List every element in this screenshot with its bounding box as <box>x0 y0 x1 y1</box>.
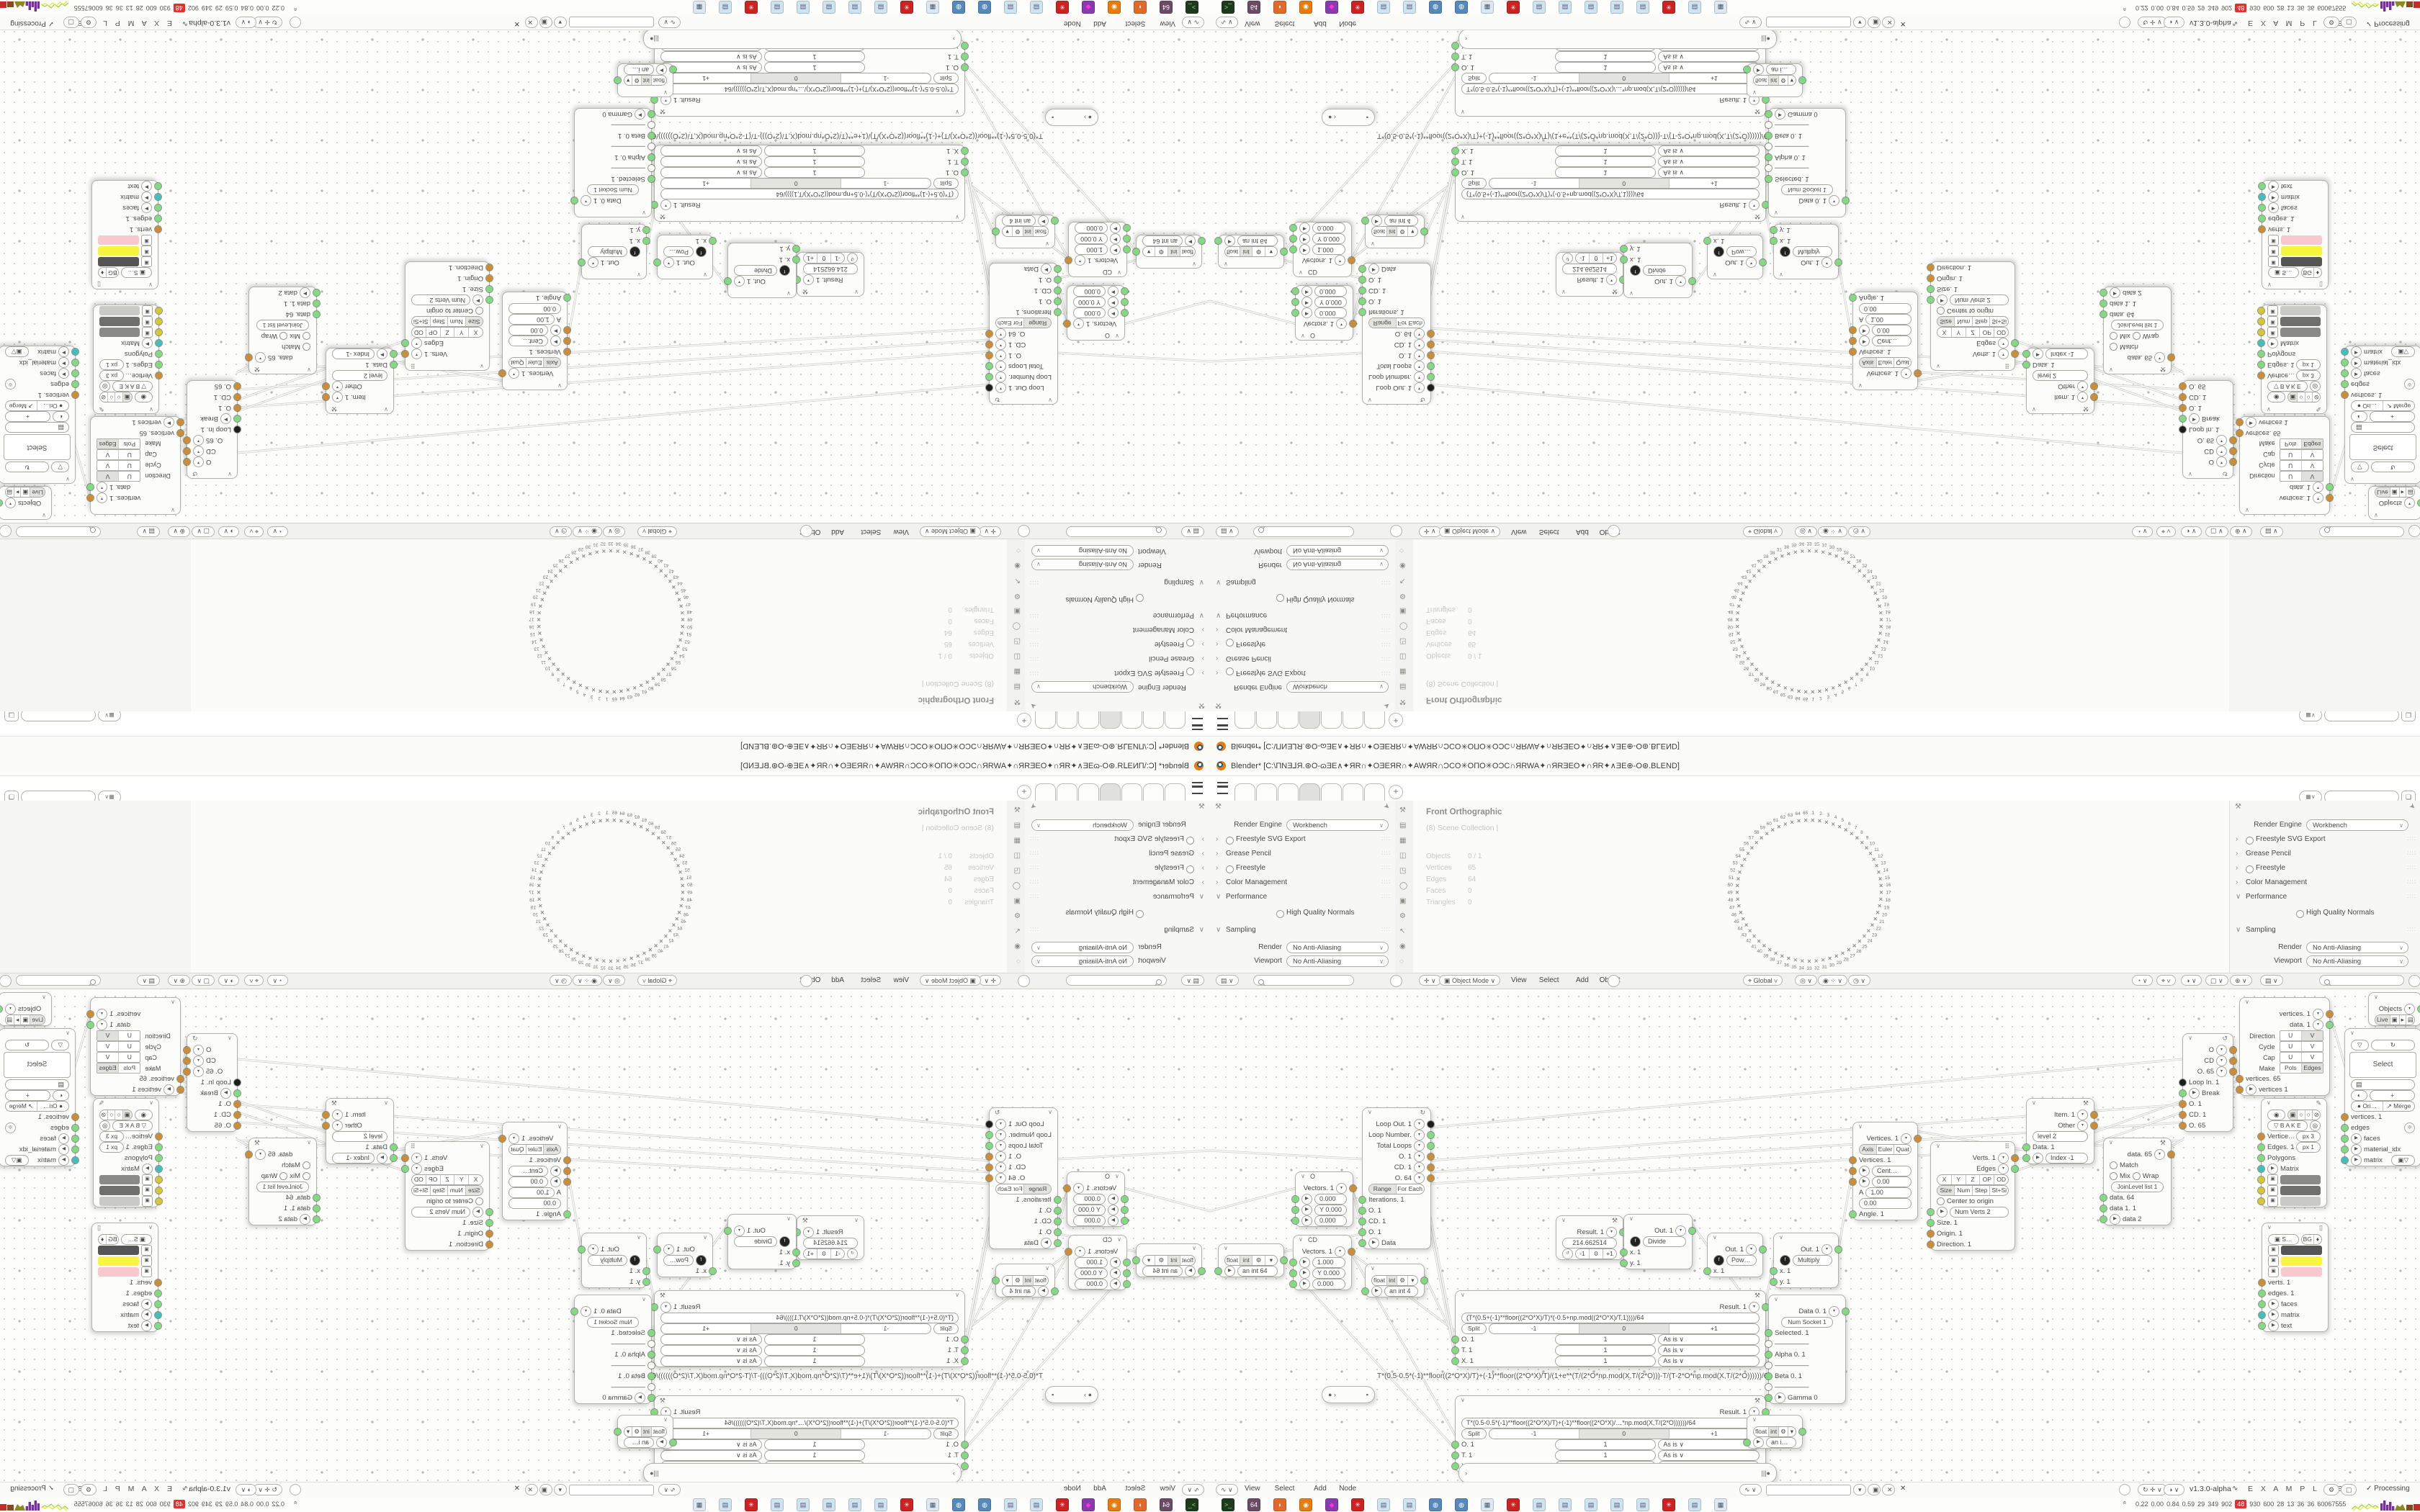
widget-toggle-icon[interactable]: ▶ <box>1299 1268 1310 1279</box>
socket-green[interactable] <box>1428 363 1434 369</box>
socket-green[interactable] <box>1292 299 1299 305</box>
node-titlebar[interactable]: ∨↻ <box>1363 1108 1430 1119</box>
widget-toggle-icon[interactable]: ▶ <box>141 1310 152 1320</box>
grid-cell[interactable]: Edges <box>2302 1063 2323 1073</box>
properties-tab-icon[interactable]: ⚙ <box>1014 592 1021 600</box>
socket-green[interactable] <box>155 204 161 211</box>
socket-hollow[interactable] <box>648 165 655 171</box>
swatch-icon-button[interactable]: ▣ <box>141 1266 152 1277</box>
stepper-button[interactable]: +1 <box>804 253 817 263</box>
socket-green[interactable] <box>986 1143 992 1149</box>
taskbar-icon-notepad[interactable]: ▤ <box>797 1498 810 1511</box>
count-field[interactable]: 1 <box>764 1450 866 1461</box>
collapse-icon[interactable]: ∨ <box>171 999 175 1005</box>
collapse-icon[interactable]: ∨ <box>1858 382 1863 389</box>
taskbar-icon-notepad[interactable]: ▤ <box>1585 1498 1597 1511</box>
render-engine-select[interactable]: Workbench <box>1031 681 1134 693</box>
segment-option[interactable]: OP <box>1980 1175 1994 1184</box>
split-option[interactable]: ◎ <box>100 1121 109 1130</box>
socket-green[interactable] <box>2023 351 2030 357</box>
collapse-icon[interactable]: ∨ <box>2267 282 2272 288</box>
input-field[interactable]: Y 0.000 <box>1075 233 1108 244</box>
split-left-button[interactable]: ▣ S… <box>2268 267 2299 278</box>
workspace-tab[interactable] <box>1321 783 1342 801</box>
node-menu-chip[interactable]: ∿ ∨ <box>1216 1484 1238 1495</box>
close-button[interactable]: ✕ <box>1882 17 1895 28</box>
widget-toggle-icon[interactable]: ▶ <box>1753 64 1764 75</box>
grid-cells[interactable]: UV <box>2280 1030 2323 1041</box>
node-titlebar[interactable]: ∨O <box>1296 1172 1353 1183</box>
collapse-icon[interactable]: ∨ <box>2109 366 2113 373</box>
widget-toggle-icon[interactable]: ▶ <box>2351 1144 2362 1155</box>
socket-dropdown-icon[interactable]: ▾ <box>332 1110 343 1120</box>
socket-green[interactable] <box>2326 484 2333 490</box>
input-field[interactable]: an int 4 <box>1002 1286 1036 1297</box>
input-field[interactable]: 0.000 <box>1073 307 1106 318</box>
node-divide[interactable]: ∨Out. 1▾fDividex. 1y. 1 <box>1623 243 1693 298</box>
file-helix-chip[interactable]: ∿ ∨ <box>658 1484 681 1495</box>
input-field[interactable]: 0.00 <box>508 325 548 336</box>
socket-green[interactable] <box>72 370 79 377</box>
collapse-icon[interactable]: ∨ <box>480 363 484 369</box>
split-option[interactable]: 0 <box>750 73 841 83</box>
swatch-icon-button[interactable]: ▣ <box>142 305 153 316</box>
node-result-a[interactable]: ∨⚒Result. 1▾214.662514↺-10+1 <box>797 1215 864 1260</box>
node-titlebar[interactable]: ∨ <box>2345 1029 2420 1040</box>
collapse-icon[interactable]: ∨ <box>1629 290 1633 297</box>
header-menu-select[interactable]: Select <box>861 528 881 536</box>
socket-orange[interactable] <box>184 1058 190 1064</box>
shading-button[interactable]: ⊕ ∨ <box>168 526 190 537</box>
expand-arrow-icon[interactable]: › <box>1202 640 1204 648</box>
collapse-icon[interactable]: ∨ <box>1461 214 1465 220</box>
split-right-group[interactable]: -10+1 <box>1489 1428 1760 1439</box>
segment-option[interactable]: float <box>1372 1276 1387 1285</box>
socket-green[interactable] <box>156 361 162 368</box>
socket-green[interactable] <box>1359 1240 1366 1246</box>
count-field[interactable]: 1 <box>1555 145 1657 156</box>
taskbar-icon-notepad[interactable]: ▤ <box>1004 1 1017 14</box>
node-titlebar[interactable]: ∨ <box>1624 287 1692 297</box>
grid-cell[interactable]: V <box>2302 461 2323 470</box>
segment-option[interactable]: Euler <box>1877 1145 1895 1154</box>
socket-green[interactable] <box>1760 259 1766 266</box>
grid-cell[interactable]: V <box>97 461 118 470</box>
taskbar-icon-gear-red[interactable]: ✳ <box>1351 1 1364 14</box>
split-option[interactable]: +1 <box>661 179 750 188</box>
socket-orange[interactable] <box>2179 394 2186 400</box>
socket-green[interactable] <box>1359 1207 1366 1214</box>
expand-arrow-icon[interactable]: ∨ <box>1216 893 1221 901</box>
properties-tab-icon[interactable]: ◉ <box>1399 562 1406 570</box>
socket-orange[interactable] <box>184 459 190 465</box>
socket-green[interactable] <box>725 1228 731 1234</box>
node-select-merge[interactable]: ∨▽↻Select▤◐+● Ori…↗ Mergevertices. 1edge… <box>0 346 76 484</box>
segment-option[interactable]: St+Si <box>412 1186 430 1195</box>
input-field[interactable]: Cent… <box>508 336 548 346</box>
widget-toggle-icon[interactable]: ▶ <box>635 109 645 120</box>
collapse-icon[interactable]: ∨ <box>1858 1123 1863 1130</box>
count-field[interactable]: 1 <box>764 167 866 178</box>
split-right-group[interactable]: -10+1 <box>1489 178 1760 189</box>
socket-green[interactable] <box>793 256 799 263</box>
socket-orange[interactable] <box>155 1279 161 1286</box>
node-select-merge[interactable]: ∨▽↻Select▤◐+● Ori…↗ Mergevertices. 1edge… <box>0 1028 76 1166</box>
split-option[interactable]: -1 <box>841 1324 931 1333</box>
node-titlebar[interactable]: ∨O <box>1067 1172 1124 1183</box>
socket-orange[interactable] <box>2091 1122 2097 1129</box>
socket-green[interactable] <box>2341 359 2348 366</box>
node-loop-in[interactable]: ∨↺O▾CD▾O. 65▾Loop In. 1▶BreakO. 1CD. 1O.… <box>187 380 238 479</box>
node-objects-live[interactable]: ∨Objects▾Live▣▸▤ <box>0 486 52 520</box>
swatch-icon-button[interactable]: ▣ <box>2267 305 2278 316</box>
segment-option[interactable]: float <box>1372 227 1387 236</box>
socket-dropdown-icon[interactable]: ▾ <box>1749 1302 1760 1313</box>
render-engine-select[interactable]: Workbench <box>1286 681 1389 693</box>
socket-green[interactable] <box>793 246 799 252</box>
input-field[interactable]: an int 64 <box>1142 1266 1183 1277</box>
grid-cell[interactable]: V <box>97 450 118 459</box>
socket-black[interactable] <box>1428 1121 1434 1128</box>
properties-tab-icon[interactable]: ↖ <box>1399 577 1405 585</box>
mode-select[interactable]: As is ∨ <box>660 167 762 178</box>
segmented-control[interactable]: Live▣▸▤ <box>2375 1014 2415 1025</box>
node-titlebar[interactable]: ∨ <box>1769 1295 1845 1306</box>
detach-icon[interactable]: ✕ <box>514 19 520 27</box>
workspace-tab[interactable] <box>1278 711 1299 729</box>
socket-dropdown-icon[interactable]: ▾ <box>1821 257 1832 268</box>
radio-button[interactable] <box>475 307 483 315</box>
socket-green[interactable] <box>2341 381 2348 387</box>
split-option[interactable]: ↻ <box>2372 462 2414 472</box>
header-menu-view[interactable]: View <box>894 528 910 536</box>
node-titlebar[interactable]: ∨⚒ <box>655 210 964 221</box>
taskbar-icon-calculator[interactable]: ▦ <box>926 1498 939 1511</box>
segment-option[interactable]: ▾ <box>1003 1276 1012 1285</box>
collapse-icon[interactable]: ∨ <box>2267 1224 2272 1230</box>
function-select[interactable]: Divide <box>1643 1236 1686 1247</box>
segmented-control[interactable]: XYZOPOD <box>1937 1174 2009 1185</box>
socket-green[interactable] <box>1704 238 1711 244</box>
socket-green[interactable] <box>1359 1229 1366 1236</box>
input-pill[interactable]: px 3 <box>2296 1131 2321 1142</box>
segment-option[interactable]: OP <box>1980 328 1994 337</box>
socket-green[interactable] <box>1215 1268 1222 1274</box>
socket-dropdown-icon[interactable]: ▾ <box>2216 1066 2227 1077</box>
socket-dropdown-icon[interactable]: ▾ <box>1901 1133 1912 1144</box>
toolbar-menu-add[interactable]: Add <box>1314 19 1327 27</box>
widget-toggle-icon[interactable]: ▶ <box>1368 1238 1379 1248</box>
color-swatch[interactable] <box>99 1186 140 1195</box>
taskbar-icon-app-blue[interactable]: ◍ <box>1429 1498 1442 1511</box>
widget-toggle-icon[interactable]: ▶ <box>1108 1215 1119 1226</box>
segment-option[interactable]: ▾ <box>1265 1256 1277 1265</box>
taskbar-icon-app-blue[interactable]: ◍ <box>978 1498 991 1511</box>
socket-yellow[interactable] <box>2258 1198 2264 1205</box>
collapse-icon[interactable]: ∨ <box>1936 363 1940 369</box>
node-swatches[interactable]: ∨▯▣ S…BG♦▣▣▣verts. 1edges. 1▶faces▶matri… <box>91 1223 158 1332</box>
dna-icon[interactable]: ∿ <box>2232 19 2238 27</box>
socket-green[interactable] <box>1452 1441 1458 1448</box>
socket-green[interactable] <box>72 1146 79 1153</box>
collapse-icon[interactable]: ∨ <box>42 994 46 1000</box>
socket-dropdown-icon[interactable]: ▾ <box>1821 1244 1832 1255</box>
socket-orange[interactable] <box>2179 405 2186 411</box>
function-select[interactable]: Power 2 <box>663 1255 694 1266</box>
node-field[interactable]: level 2 <box>2033 370 2088 381</box>
node-loop-in[interactable]: ∨↺O▾CD▾O. 65▾Loop In. 1▶BreakO. 1CD. 1O.… <box>2182 1033 2233 1132</box>
collapse-icon[interactable]: ∨ <box>557 1123 562 1130</box>
socket-orange[interactable] <box>2259 1279 2265 1286</box>
node-titlebar[interactable]: ∨ <box>91 998 180 1009</box>
header-menu-view[interactable]: View <box>1511 528 1527 536</box>
workspace-tab[interactable] <box>1321 711 1342 729</box>
widget-toggle-icon[interactable]: ▶ <box>2351 357 2362 368</box>
split-left-button[interactable]: ◐ <box>2351 411 2367 422</box>
split-option[interactable]: ♦ <box>99 268 106 277</box>
socket-dropdown-icon[interactable]: ▾ <box>411 1164 422 1174</box>
socket-orange[interactable] <box>177 1076 184 1082</box>
close-button[interactable]: ✕ <box>1882 1484 1895 1495</box>
segment-option[interactable]: Range <box>1369 1184 1397 1194</box>
node-titlebar[interactable]: ∨ <box>1747 1416 1802 1426</box>
node-loop[interactable]: ∨↻Loop Out. 1▾Loop Number. 1▾Total Loops… <box>989 1107 1058 1249</box>
socket-green[interactable] <box>87 1022 94 1028</box>
node-titlebar[interactable]: ∨ <box>2369 508 2420 519</box>
header-menu-view[interactable]: View <box>1511 976 1527 984</box>
segment-option[interactable]: Num <box>447 1186 465 1195</box>
segment-option[interactable]: float <box>1225 247 1240 256</box>
gizmo-chip[interactable]: ✛ ∨ <box>1419 975 1441 986</box>
segment-option[interactable]: int <box>641 1427 651 1436</box>
panel-section-row[interactable]: ›Color Management:::: <box>1210 621 1395 634</box>
input-field[interactable]: Index -1 <box>2045 1153 2088 1164</box>
node-float-int-c[interactable]: ∨floatint⚙▾▶an int 1 <box>1747 63 1803 97</box>
split-left-button[interactable]: ◐ <box>2351 1090 2367 1101</box>
node-field[interactable]: 214.662514 <box>803 264 858 274</box>
stepper-button[interactable]: 0 <box>1590 253 1603 263</box>
collapse-icon[interactable]: ∨ <box>228 1035 232 1041</box>
input-pill[interactable]: px 1 <box>2296 359 2321 370</box>
editor-type-chip-right[interactable]: ▤ ∨ <box>2260 975 2283 986</box>
socket-dropdown-icon[interactable]: ▾ <box>1414 350 1425 361</box>
socket-green[interactable] <box>1621 1260 1627 1266</box>
segment-option[interactable]: Range <box>1369 318 1397 328</box>
socket-green[interactable] <box>614 1428 621 1435</box>
panel-section-row[interactable]: ∨Sampling:::: <box>2230 926 2420 938</box>
close-button[interactable]: ✕ <box>525 17 538 28</box>
widget-toggle-icon[interactable]: ▶ <box>1775 109 1785 120</box>
app-version[interactable]: v1.3.0-alpha <box>189 19 230 27</box>
socket-orange[interactable] <box>1850 1157 1856 1164</box>
node-titlebar[interactable]: ∨ <box>728 287 796 297</box>
node-titlebar[interactable]: ∨ <box>618 86 673 96</box>
input-field[interactable]: an int 4 <box>1384 1286 1418 1297</box>
socket-green[interactable] <box>962 148 968 154</box>
input-field[interactable]: 1.00 <box>1865 314 1912 325</box>
stepper-button[interactable]: 0 <box>817 1249 830 1259</box>
shading-button[interactable]: ◑ ∨ <box>2181 975 2202 986</box>
socket-green[interactable] <box>155 183 161 189</box>
node-power[interactable]: ∨Out. 1▾fPower 2x. 1 <box>657 235 713 279</box>
segment-option[interactable]: Size <box>465 1186 483 1195</box>
collapse-icon[interactable]: ∨ <box>1301 333 1305 339</box>
kv-select[interactable]: No Anti-Aliasing <box>1031 545 1134 557</box>
shading-button[interactable]: ⌖ ∨ <box>2156 975 2176 986</box>
socket-orange[interactable] <box>2258 372 2264 379</box>
socket-dropdown-icon[interactable]: ▾ <box>97 1009 107 1020</box>
node-titlebar[interactable]: ∨⚒ <box>655 1396 964 1407</box>
collapse-icon[interactable]: ∨ <box>2032 1099 2036 1106</box>
node-float-int-b[interactable]: ∨floatint⚙▾▶an int 4 <box>995 215 1055 248</box>
workspace-tab[interactable] <box>1035 783 1056 801</box>
segmented-control[interactable]: RangeFor Each <box>995 1184 1052 1194</box>
split-option[interactable]: ▣ <box>122 392 132 402</box>
socket-orange[interactable] <box>234 394 241 400</box>
segment-option[interactable]: Num <box>447 317 465 326</box>
grid-cell[interactable]: V <box>2302 1053 2323 1062</box>
node-titlebar[interactable]: ∨⚒ <box>1456 105 1765 116</box>
socket-orange[interactable] <box>156 372 162 379</box>
node-divide[interactable]: ∨Out. 1▾fDividex. 1y. 1 <box>727 1214 797 1269</box>
properties-tab-icon[interactable]: ◳ <box>1014 867 1021 875</box>
node-titlebar[interactable]: ∨↺ <box>2183 1034 2233 1045</box>
collapse-icon[interactable]: ∨ <box>955 1397 959 1403</box>
node-grid-verts[interactable]: ∨⠿Verts. 1▾Edges▾XYZOPODSizeNumStepSt+Si… <box>405 1141 490 1251</box>
color-swatch[interactable] <box>98 246 139 256</box>
socket-dropdown-icon[interactable]: ▾ <box>1414 382 1425 393</box>
split-right-group[interactable]: + <box>5 411 50 422</box>
segment-option[interactable]: ● Ori… <box>2352 1102 2383 1111</box>
socket-yellow[interactable] <box>156 329 162 336</box>
socket-green[interactable] <box>564 294 570 301</box>
grid-cell[interactable]: U <box>118 472 140 481</box>
node-vec-O[interactable]: ∨OVectors. 1▾▶0.000▶Y 0.000▶0.000 <box>1067 285 1125 341</box>
collapse-icon[interactable]: ∨ <box>307 1139 311 1146</box>
socket-green[interactable] <box>2341 1146 2348 1153</box>
socket-green[interactable] <box>1765 176 1772 182</box>
node-float-int-c[interactable]: ∨floatint⚙▾▶an int 1 <box>617 63 673 97</box>
panel-section-row[interactable]: ›Grease Pencil:::: <box>1210 650 1395 662</box>
socket-green[interactable] <box>313 300 320 307</box>
node-field[interactable]: ▤ <box>2351 1079 2415 1090</box>
collapse-icon[interactable]: ∨ <box>703 1234 707 1241</box>
segment-option[interactable]: Y <box>1952 328 1966 337</box>
input-field[interactable]: Cent… <box>508 1166 548 1176</box>
input-field[interactable]: an int 1 <box>1766 64 1796 75</box>
socket-dropdown-icon[interactable]: ▾ <box>2216 1056 2227 1066</box>
socket-orange[interactable] <box>234 405 241 411</box>
node-result-a[interactable]: ∨⚒Result. 1▾214.662514↺-10+1 <box>1556 252 1623 297</box>
radio-button[interactable] <box>1937 307 1945 315</box>
properties-tab-icon[interactable]: ↖ <box>1015 577 1021 585</box>
socket-dropdown-icon[interactable]: ▾ <box>1606 1227 1617 1238</box>
node-field[interactable]: (T*(0.5+(-1)**floor((2*O*X)/T)*(-0.5+np.… <box>1461 189 1760 199</box>
grid-cell[interactable]: V <box>2302 472 2323 481</box>
socket-green[interactable] <box>313 311 320 318</box>
cycle-icon[interactable]: ↺ <box>1562 1248 1573 1259</box>
expand-arrow-icon[interactable]: › <box>1202 864 1204 872</box>
split-right-group[interactable]: + <box>5 1090 50 1101</box>
properties-tab-icon[interactable]: ▣ <box>1014 897 1021 905</box>
swatch-icon-button[interactable]: ▣ <box>2267 316 2278 327</box>
segmented-control[interactable]: SizeNumStepSt+Si <box>1937 1185 2009 1196</box>
socket-dropdown-icon[interactable]: ▾ <box>1336 1183 1347 1194</box>
panel-section-row[interactable]: ›Freestyle:::: <box>1025 864 1210 876</box>
split-left-button[interactable]: ◉ <box>135 1110 153 1120</box>
socket-dropdown-icon[interactable]: ▾ <box>995 1119 1006 1130</box>
function-select[interactable]: Divide <box>734 1236 777 1247</box>
socket-green[interactable] <box>1281 248 1287 255</box>
socket-green[interactable] <box>2259 1301 2265 1308</box>
function-select[interactable]: Divide <box>734 265 777 276</box>
count-field[interactable]: 1 <box>1555 1439 1657 1450</box>
segment-option[interactable]: ▸ <box>14 1015 20 1025</box>
toolbar-menu-add[interactable]: Add <box>1093 19 1106 27</box>
socket-green[interactable] <box>1362 1288 1368 1295</box>
node-item-other[interactable]: ∨⚒Item. 1▾Other▾level 2Data. 1▶Index -1 <box>326 1098 394 1164</box>
workspace-tab[interactable] <box>1057 711 1077 729</box>
node-titlebar[interactable]: ∨✎ <box>94 1099 158 1110</box>
grid-cells[interactable]: UV <box>2280 1041 2323 1052</box>
segmented-control[interactable]: RangeFor Each <box>1368 318 1425 328</box>
widget-toggle-icon[interactable]: ▶ <box>656 64 667 75</box>
node-titlebar[interactable]: ∨ <box>1219 1244 1283 1255</box>
taskbar-icon-notepad[interactable]: ▤ <box>1377 1 1390 14</box>
expand-arrow-icon[interactable]: › <box>2236 835 2238 843</box>
color-swatch[interactable] <box>99 1175 140 1184</box>
node-titlebar[interactable]: ∨⚒ <box>1556 1216 1623 1227</box>
socket-orange[interactable] <box>1850 338 1856 344</box>
grid-cell[interactable]: U <box>2280 1042 2302 1051</box>
function-select[interactable]: Multiply <box>1793 1255 1832 1266</box>
socket-green[interactable] <box>648 132 655 139</box>
socket-dropdown-icon[interactable]: ▾ <box>2216 456 2227 467</box>
header-search[interactable] <box>1253 975 1354 986</box>
split-right-group[interactable]: ↻ <box>2371 1040 2415 1050</box>
node-pill[interactable]: JoinLevel list 1 <box>2111 320 2164 330</box>
status-circle[interactable] <box>290 17 301 28</box>
toolbar-menu-view[interactable]: View <box>1245 19 1260 27</box>
socket-dropdown-icon[interactable]: ▾ <box>588 1244 599 1255</box>
socket-green[interactable] <box>72 381 79 387</box>
split-option[interactable]: + <box>2370 1091 2414 1100</box>
pivot-chip[interactable]: ◷ ∨ <box>1848 975 1870 986</box>
input-pill[interactable]: px 1 <box>99 1142 124 1153</box>
cycle-icon[interactable]: ↺ <box>847 1248 858 1259</box>
segment-option[interactable]: ▾ <box>1788 76 1796 85</box>
collapse-icon[interactable]: ∨ <box>2188 471 2192 477</box>
node-vertices-axis[interactable]: ∨Vertices. 1▾AxisEulerQuatVertices. 1▶Ce… <box>1852 1122 1918 1220</box>
checkbox[interactable] <box>1186 865 1194 873</box>
segment-option[interactable]: Size <box>1937 317 1955 326</box>
split-option[interactable]: ↻ <box>2372 1040 2414 1050</box>
socket-green[interactable] <box>1760 1246 1766 1253</box>
taskbar-icon-notepad[interactable]: ▤ <box>797 1 810 14</box>
theme-chip[interactable]: ◑ ∨ <box>236 17 256 28</box>
socket-green[interactable] <box>1452 158 1458 165</box>
widget-toggle-icon[interactable]: ▶ <box>1038 1286 1049 1297</box>
widget-toggle-icon[interactable]: ▶ <box>220 413 231 424</box>
segment-option[interactable]: float <box>1225 1256 1240 1265</box>
node-vec-O[interactable]: ∨OVectors. 1▾▶0.000▶Y 0.000▶0.000 <box>1295 285 1353 341</box>
segment-option[interactable]: Axis <box>543 358 560 367</box>
widget-toggle-icon[interactable]: ▶ <box>2351 1155 2362 1166</box>
node-loop-in[interactable]: ∨↺O▾CD▾O. 65▾Loop In. 1▶BreakO. 1CD. 1O.… <box>2182 380 2233 479</box>
node-titlebar[interactable]: ∨↻ <box>1363 393 1430 404</box>
segment-option[interactable]: Live <box>2375 487 2390 497</box>
properties-tab-icon[interactable]: ◯ <box>1013 622 1021 630</box>
